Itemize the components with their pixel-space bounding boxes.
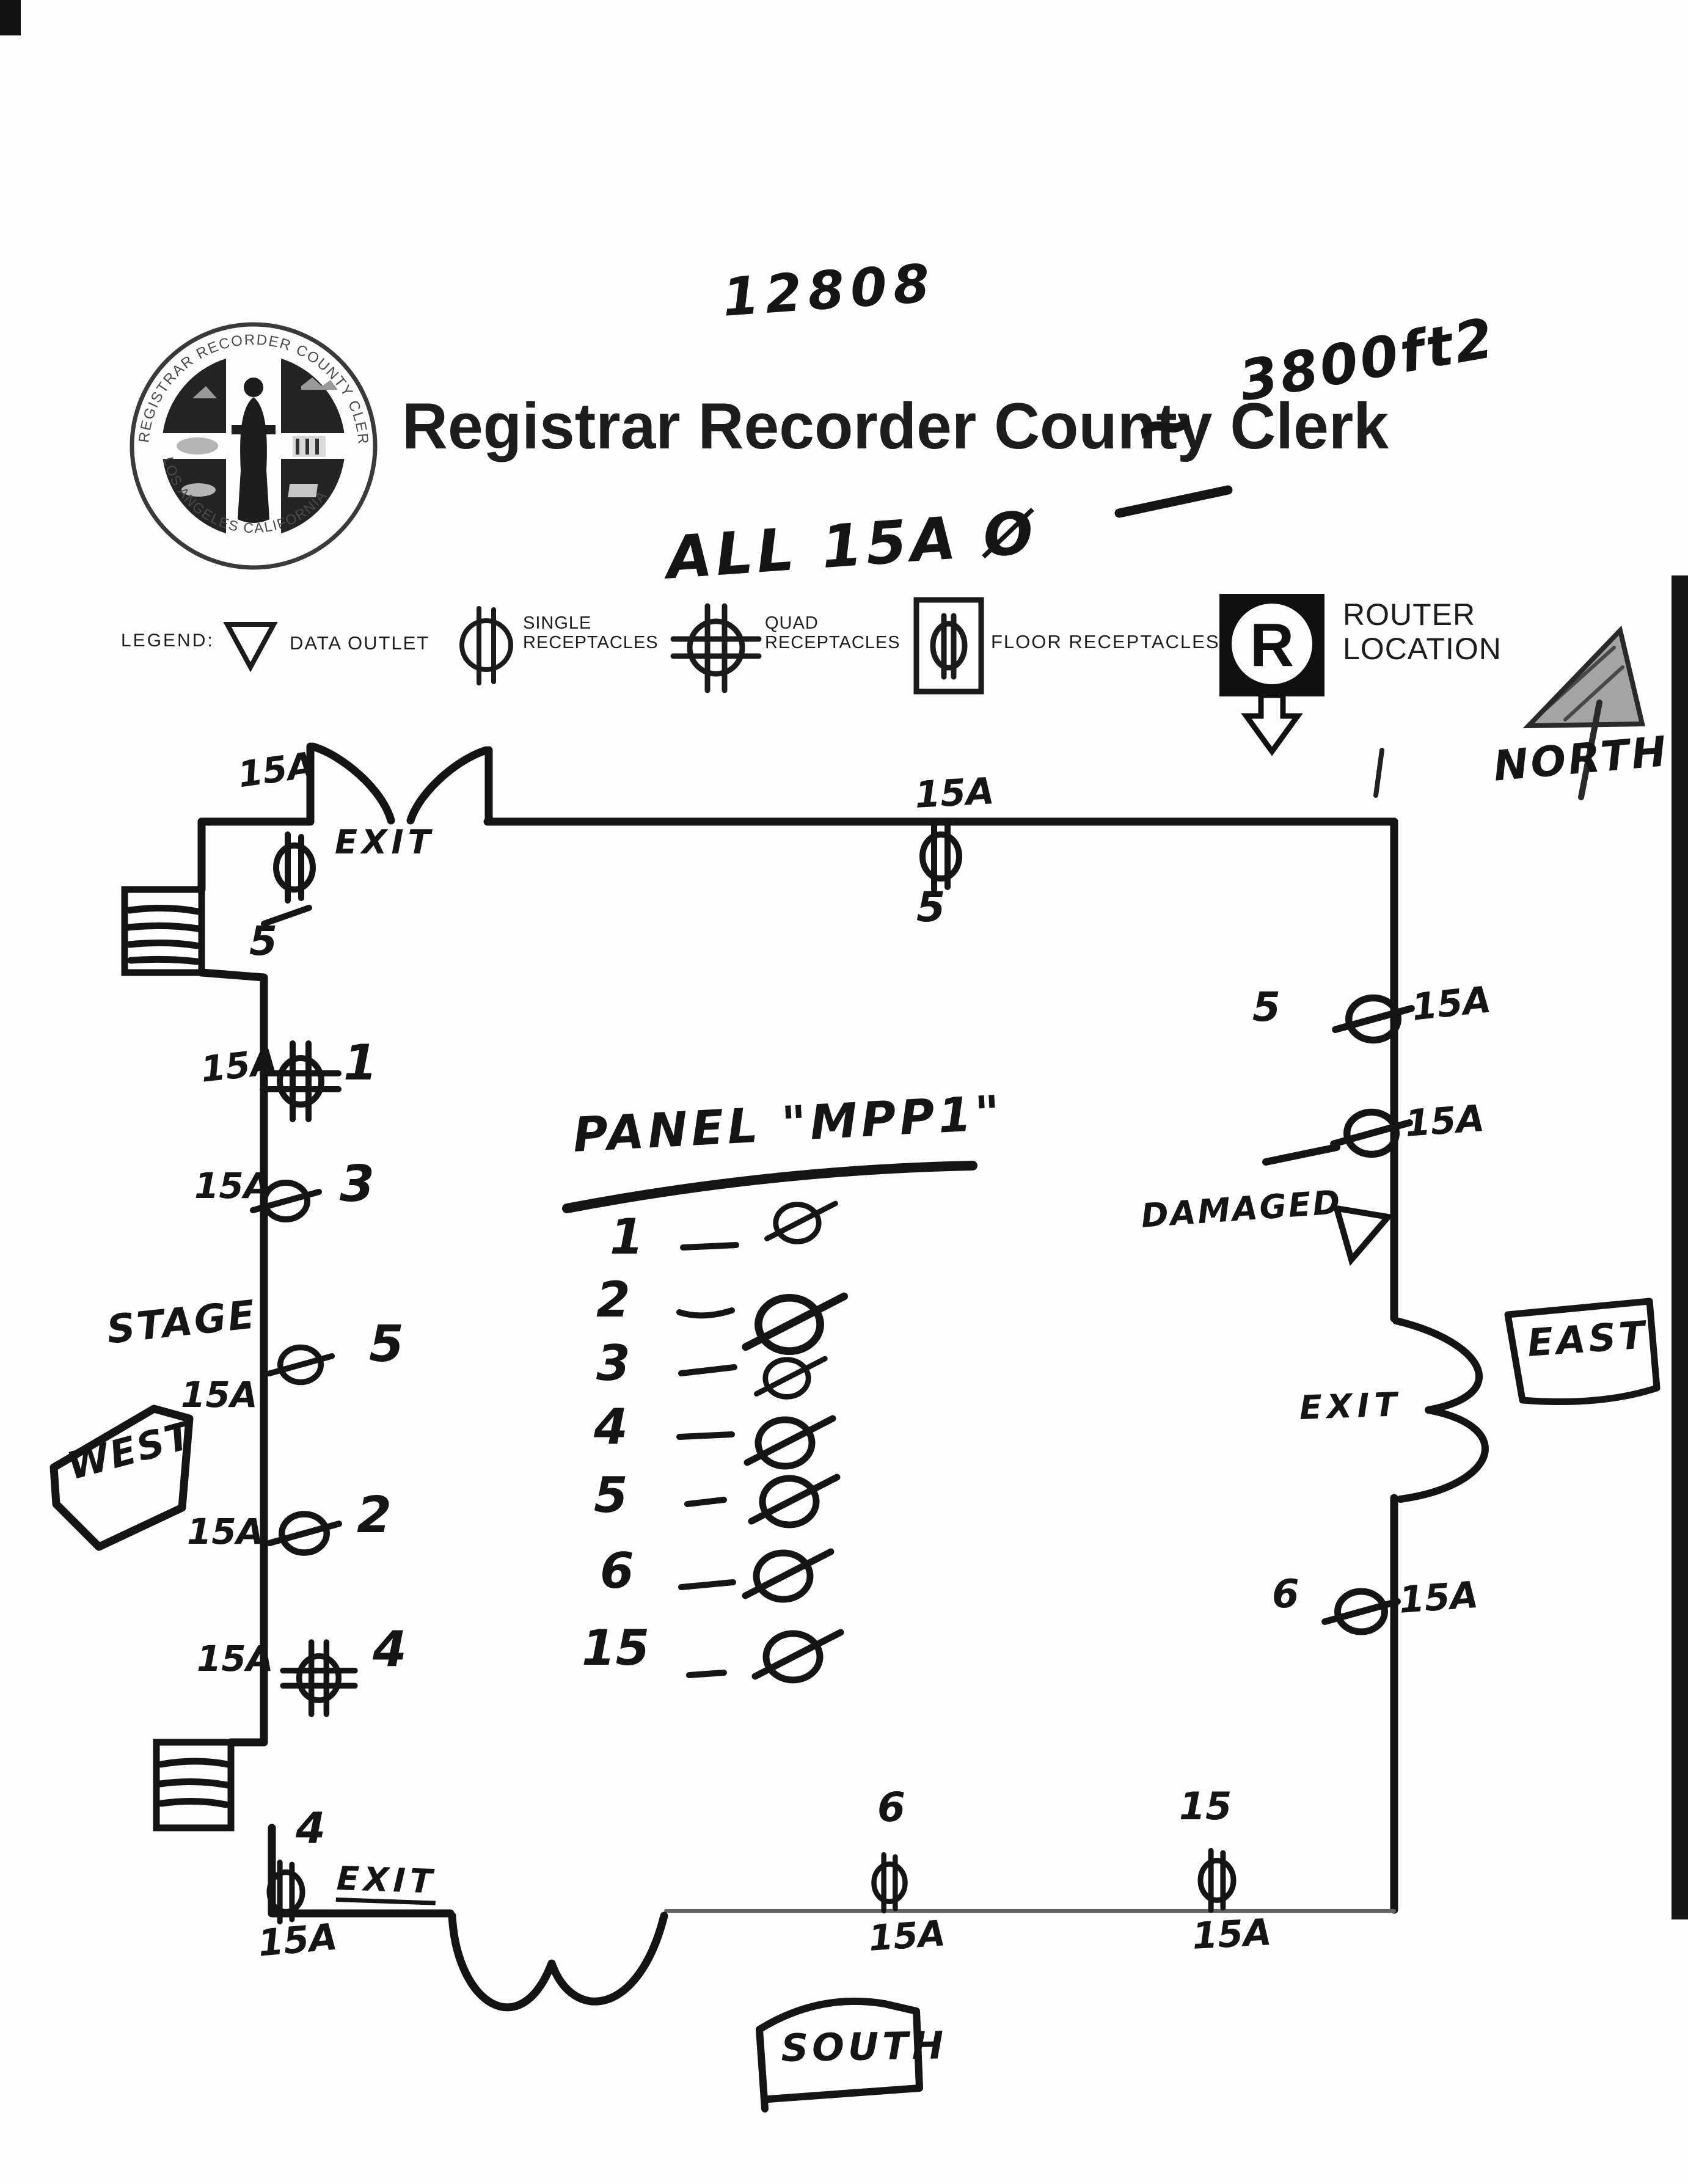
wall-receptacle-symbols [253, 824, 1411, 1922]
east-exit-door [1396, 1321, 1485, 1499]
receptacle-south-right [1200, 1850, 1233, 1910]
outlet-west-2-amps: 15A [187, 1514, 264, 1549]
outlet-stage-amps: 15A [181, 1377, 258, 1412]
outlet-north-mid-number: 5 [916, 887, 945, 929]
panel-circuit-15: 15 [582, 1624, 649, 1673]
page-title: Registrar Recorder County Clerk [402, 390, 1389, 463]
receptacle-north-door [276, 835, 313, 900]
data-outlet-east [1337, 1208, 1388, 1260]
receptacle-north-mid [923, 824, 959, 889]
legend-data-outlet-label: DATA OUTLET [290, 633, 429, 654]
legend-floor-receptacles-label: FLOOR RECEPTACLES [991, 632, 1220, 653]
legend-label: LEGEND: [121, 630, 214, 651]
outlet-west-2-number: 2 [357, 1491, 392, 1541]
outlet-north-door-number: 5 [249, 921, 277, 962]
outlet-south-exit-number: 4 [296, 1807, 326, 1850]
outlet-west-4-number: 4 [373, 1625, 407, 1674]
outlet-east-lower-amps: 15A [1398, 1577, 1480, 1619]
single-receptacle-icon [462, 608, 511, 683]
outlet-stage-number: 5 [369, 1320, 404, 1370]
receptacle-stage [269, 1348, 332, 1382]
county-seal: REGISTRAR RECORDER COUNTY CLERK LOS ANGE… [132, 324, 375, 568]
outlet-east-damaged-amps: 15A [1404, 1100, 1486, 1142]
outlet-west-1-amps: 15A [199, 1044, 279, 1087]
panel-circuit-2: 2 [596, 1276, 630, 1324]
outlet-south-mid-amps: 15A [868, 1915, 946, 1956]
receptacle-west-2 [269, 1514, 338, 1553]
south-box-label: SOUTH [781, 2026, 948, 2067]
outlet-east-lower-number: 6 [1272, 1575, 1299, 1614]
data-outlet-icon [227, 624, 274, 667]
legend-single-receptacles-label: SINGLE RECEPTACLES [523, 613, 670, 653]
receptacle-west-4 [283, 1642, 355, 1714]
receptacle-east-upper [1335, 998, 1411, 1040]
north-exit-door [310, 747, 489, 822]
east-box-label: EAST [1526, 1316, 1649, 1362]
stairs-lower-left [156, 1742, 231, 1828]
outlet-south-right-number: 15 [1179, 1788, 1232, 1825]
quad-receptacle-icon [673, 606, 759, 690]
doc-number: 12808 [721, 257, 937, 324]
legend-quad-receptacles-label: QUAD RECEPTACLES [765, 613, 918, 653]
floor-receptacle-icon [916, 600, 981, 692]
panel-circuit-4: 4 [594, 1403, 628, 1452]
exit-label-south: EXIT [336, 1862, 437, 1905]
router-location-icon: R [1219, 594, 1324, 751]
exit-label-north: EXIT [335, 826, 434, 859]
panel-circuit-3: 3 [596, 1339, 630, 1388]
approx-symbol: ~ [1125, 379, 1205, 469]
scanned-floorplan-document: REGISTRAR RECORDER COUNTY CLERK LOS ANGE… [0, 0, 1688, 2184]
outlet-west-3-amps: 15A [194, 1168, 271, 1203]
outlet-west-4-amps: 15A [197, 1641, 274, 1676]
outlet-south-exit-amps: 15A [257, 1919, 339, 1962]
outlet-west-3-number: 3 [340, 1160, 375, 1210]
legend-router-location-label: ROUTER LOCATION [1343, 597, 1544, 666]
south-exit-door [452, 1916, 664, 2007]
outlet-north-door-amps: 15A [236, 747, 316, 793]
outlet-south-right-amps: 15A [1191, 1914, 1273, 1955]
panel-circuit-6: 6 [600, 1547, 634, 1596]
outlet-east-upper-amps: 15A [1410, 981, 1493, 1026]
panel-circuit-1: 1 [610, 1213, 644, 1262]
receptacle-south-mid [874, 1855, 905, 1911]
outlet-west-1-number: 1 [343, 1039, 378, 1087]
exit-label-east: EXIT [1299, 1388, 1402, 1425]
outlet-north-mid-amps: 15A [914, 773, 995, 814]
router-letter: R [1250, 611, 1294, 679]
outlet-south-mid-number: 6 [877, 1788, 905, 1828]
panel-circuit-5: 5 [594, 1471, 628, 1520]
receptacle-east-lower [1325, 1591, 1398, 1632]
stairs-upper-left [125, 889, 202, 973]
outlet-east-upper-number: 5 [1252, 987, 1281, 1028]
